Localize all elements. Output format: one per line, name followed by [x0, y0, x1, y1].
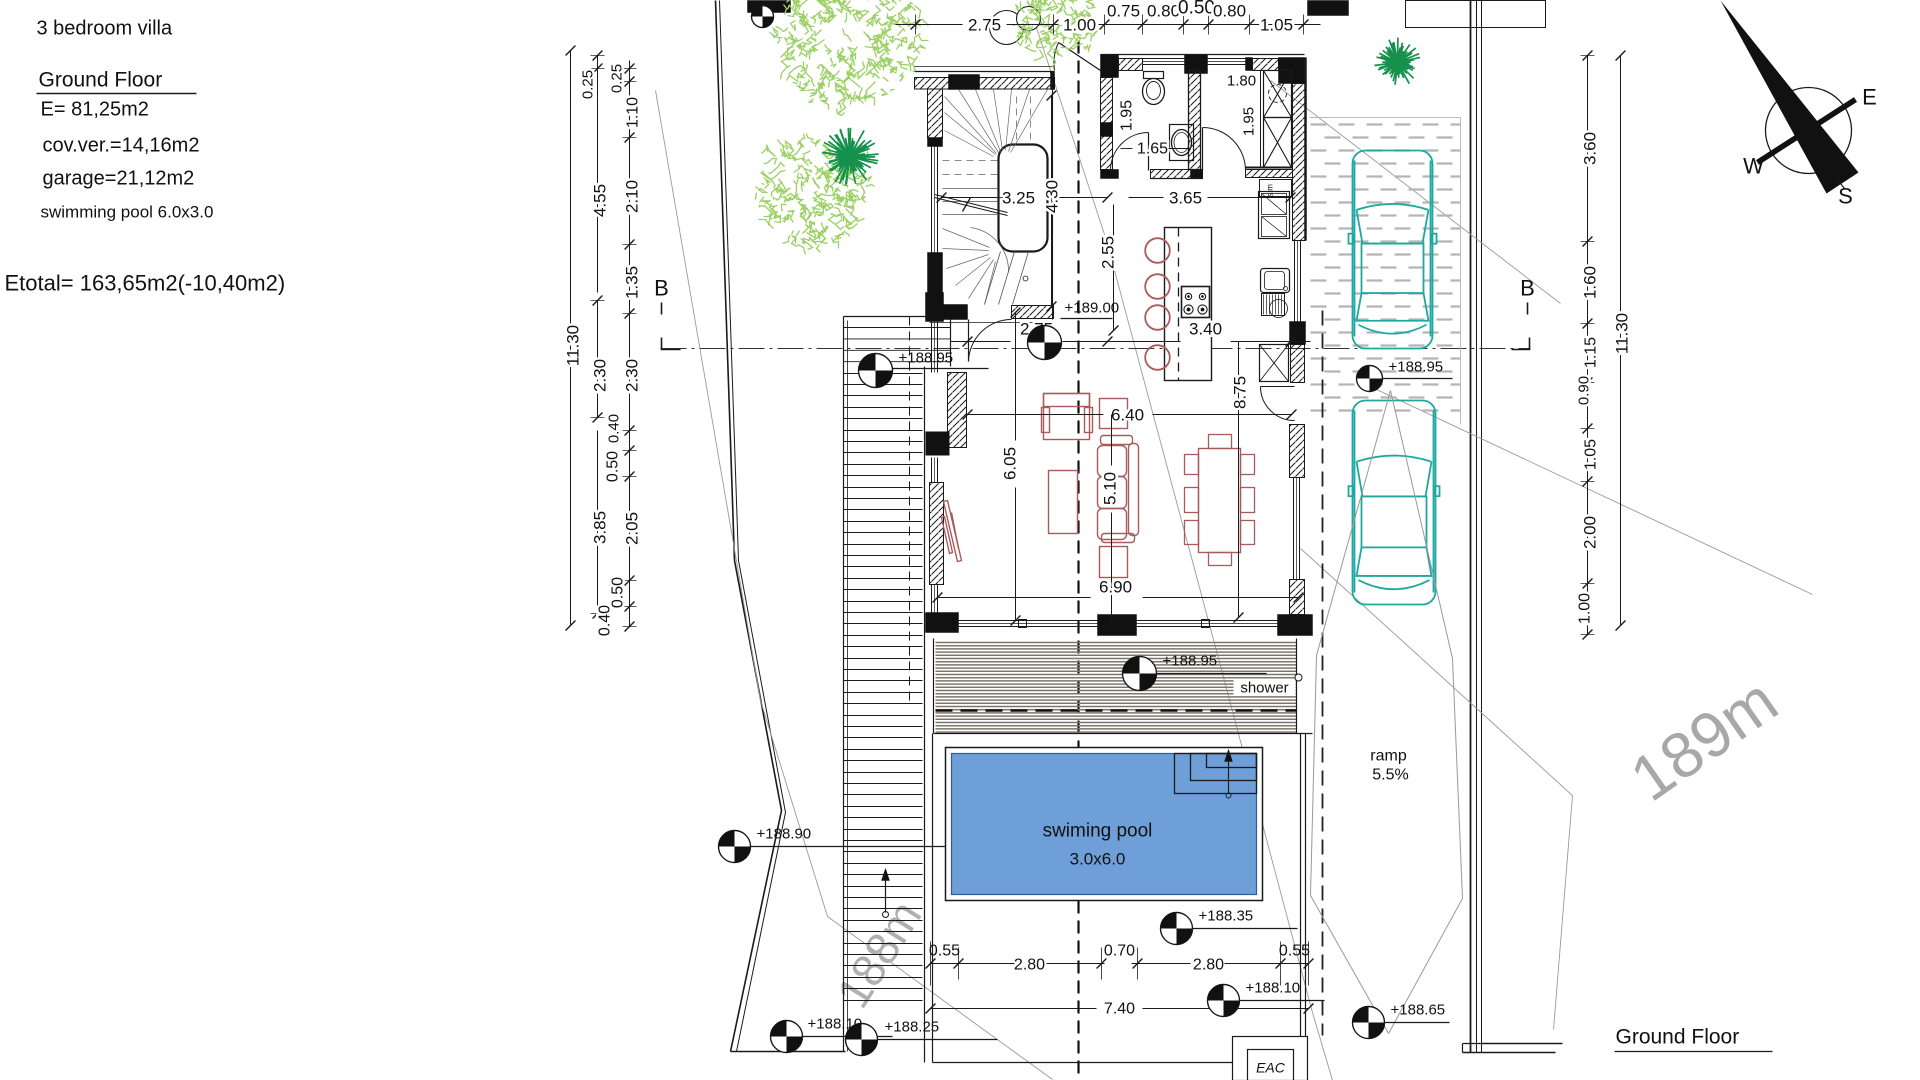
svg-text:0.80: 0.80 [1213, 2, 1246, 21]
svg-text:3.40: 3.40 [1189, 320, 1222, 339]
svg-text:S: S [1838, 184, 1853, 209]
svg-text:4.30: 4.30 [1043, 180, 1062, 213]
svg-text:swiming pool: swiming pool [1043, 821, 1153, 842]
svg-text:2.75: 2.75 [968, 16, 1001, 35]
svg-text:0.50: 0.50 [1178, 0, 1215, 19]
svg-text:3.60: 3.60 [1581, 132, 1600, 165]
svg-text:11.30: 11.30 [1613, 313, 1632, 354]
svg-text:3 bedroom villa: 3 bedroom villa [37, 18, 174, 40]
svg-text:0.25: 0.25 [609, 64, 626, 93]
svg-text:1.60: 1.60 [1581, 266, 1600, 299]
svg-text:2.10: 2.10 [623, 180, 642, 213]
svg-text:1.65: 1.65 [1137, 141, 1168, 158]
svg-text:2.80: 2.80 [1193, 957, 1224, 974]
svg-text:5.10: 5.10 [1101, 472, 1120, 505]
svg-text:2.30: 2.30 [623, 359, 642, 392]
svg-text:+188.95: +188.95 [899, 350, 954, 367]
svg-text:B: B [1520, 276, 1535, 301]
svg-text:2.80: 2.80 [1014, 957, 1045, 974]
svg-text:s.m: s.m [1266, 184, 1275, 197]
svg-text:2.05: 2.05 [623, 512, 642, 545]
svg-text:3.85: 3.85 [591, 511, 610, 544]
svg-text:3.25: 3.25 [1002, 189, 1035, 208]
svg-text:shower: shower [1240, 680, 1288, 697]
svg-text:+188.90: +188.90 [757, 826, 812, 843]
svg-text:4.55: 4.55 [591, 184, 610, 217]
svg-text:6.40: 6.40 [1111, 406, 1144, 425]
svg-text:+188.10: +188.10 [1246, 980, 1301, 997]
svg-text:garage=21,12m2: garage=21,12m2 [43, 168, 195, 190]
svg-text:1.95: 1.95 [1119, 100, 1136, 131]
svg-text:1.05: 1.05 [1583, 439, 1600, 470]
svg-text:1.05: 1.05 [1260, 16, 1293, 35]
svg-text:E: E [1862, 85, 1877, 110]
svg-text:0.70: 0.70 [1104, 943, 1135, 960]
svg-text:cov.ver.=14,16m2: cov.ver.=14,16m2 [43, 135, 200, 157]
svg-text:0.55: 0.55 [929, 943, 960, 960]
svg-text:2.55: 2.55 [1099, 236, 1118, 269]
svg-text:0.90: 0.90 [1576, 376, 1593, 405]
svg-text:5.5%: 5.5% [1372, 767, 1408, 784]
svg-text:0.75: 0.75 [1107, 2, 1140, 21]
svg-text:3.65: 3.65 [1169, 189, 1202, 208]
svg-text:+189.00: +189.00 [1065, 300, 1120, 317]
svg-text:0.25: 0.25 [580, 70, 597, 99]
svg-text:2.00: 2.00 [1581, 516, 1600, 549]
svg-text:0.40: 0.40 [597, 605, 614, 636]
svg-text:B: B [654, 276, 669, 301]
svg-text:Ground Floor: Ground Floor [1616, 1026, 1740, 1049]
svg-text:1.35: 1.35 [623, 266, 642, 299]
svg-text:0.50: 0.50 [610, 577, 627, 608]
svg-text:1.80: 1.80 [1227, 73, 1256, 90]
svg-text:1.00: 1.00 [1577, 593, 1594, 624]
svg-text:6.05: 6.05 [1001, 447, 1020, 480]
svg-text:3.0x6.0: 3.0x6.0 [1070, 850, 1126, 869]
svg-text:swimming pool 6.0x3.0: swimming pool 6.0x3.0 [41, 203, 214, 222]
svg-text:1.00: 1.00 [1063, 16, 1096, 35]
svg-text:0.55: 0.55 [1279, 943, 1310, 960]
svg-text:2.30: 2.30 [591, 359, 610, 392]
svg-text:Etotal= 163,65m2(-10,40m2): Etotal= 163,65m2(-10,40m2) [5, 271, 286, 296]
svg-text:6.90: 6.90 [1099, 578, 1132, 597]
svg-text:7.40: 7.40 [1104, 1001, 1135, 1018]
svg-text:1.15: 1.15 [1583, 337, 1600, 368]
svg-text:EAC: EAC [1256, 1060, 1286, 1076]
svg-text:+188.25: +188.25 [885, 1019, 940, 1036]
svg-text:8.75: 8.75 [1231, 376, 1250, 409]
svg-text:+188.95: +188.95 [1389, 359, 1444, 376]
svg-text:+188.95: +188.95 [1163, 653, 1218, 670]
svg-text:0.80: 0.80 [1147, 2, 1180, 21]
svg-text:+188.35: +188.35 [1199, 908, 1254, 925]
svg-text:Ground Floor: Ground Floor [39, 69, 163, 92]
svg-text:1.95: 1.95 [1241, 107, 1258, 136]
svg-text:0.40: 0.40 [606, 414, 623, 443]
svg-text:+188.65: +188.65 [1391, 1002, 1446, 1019]
svg-text:11.30: 11.30 [564, 325, 583, 366]
svg-text:0.50: 0.50 [605, 451, 622, 482]
svg-text:ramp: ramp [1370, 748, 1407, 765]
svg-text:W: W [1743, 154, 1764, 179]
svg-text:E= 81,25m2: E= 81,25m2 [41, 99, 149, 121]
svg-text:1.10: 1.10 [625, 97, 642, 128]
